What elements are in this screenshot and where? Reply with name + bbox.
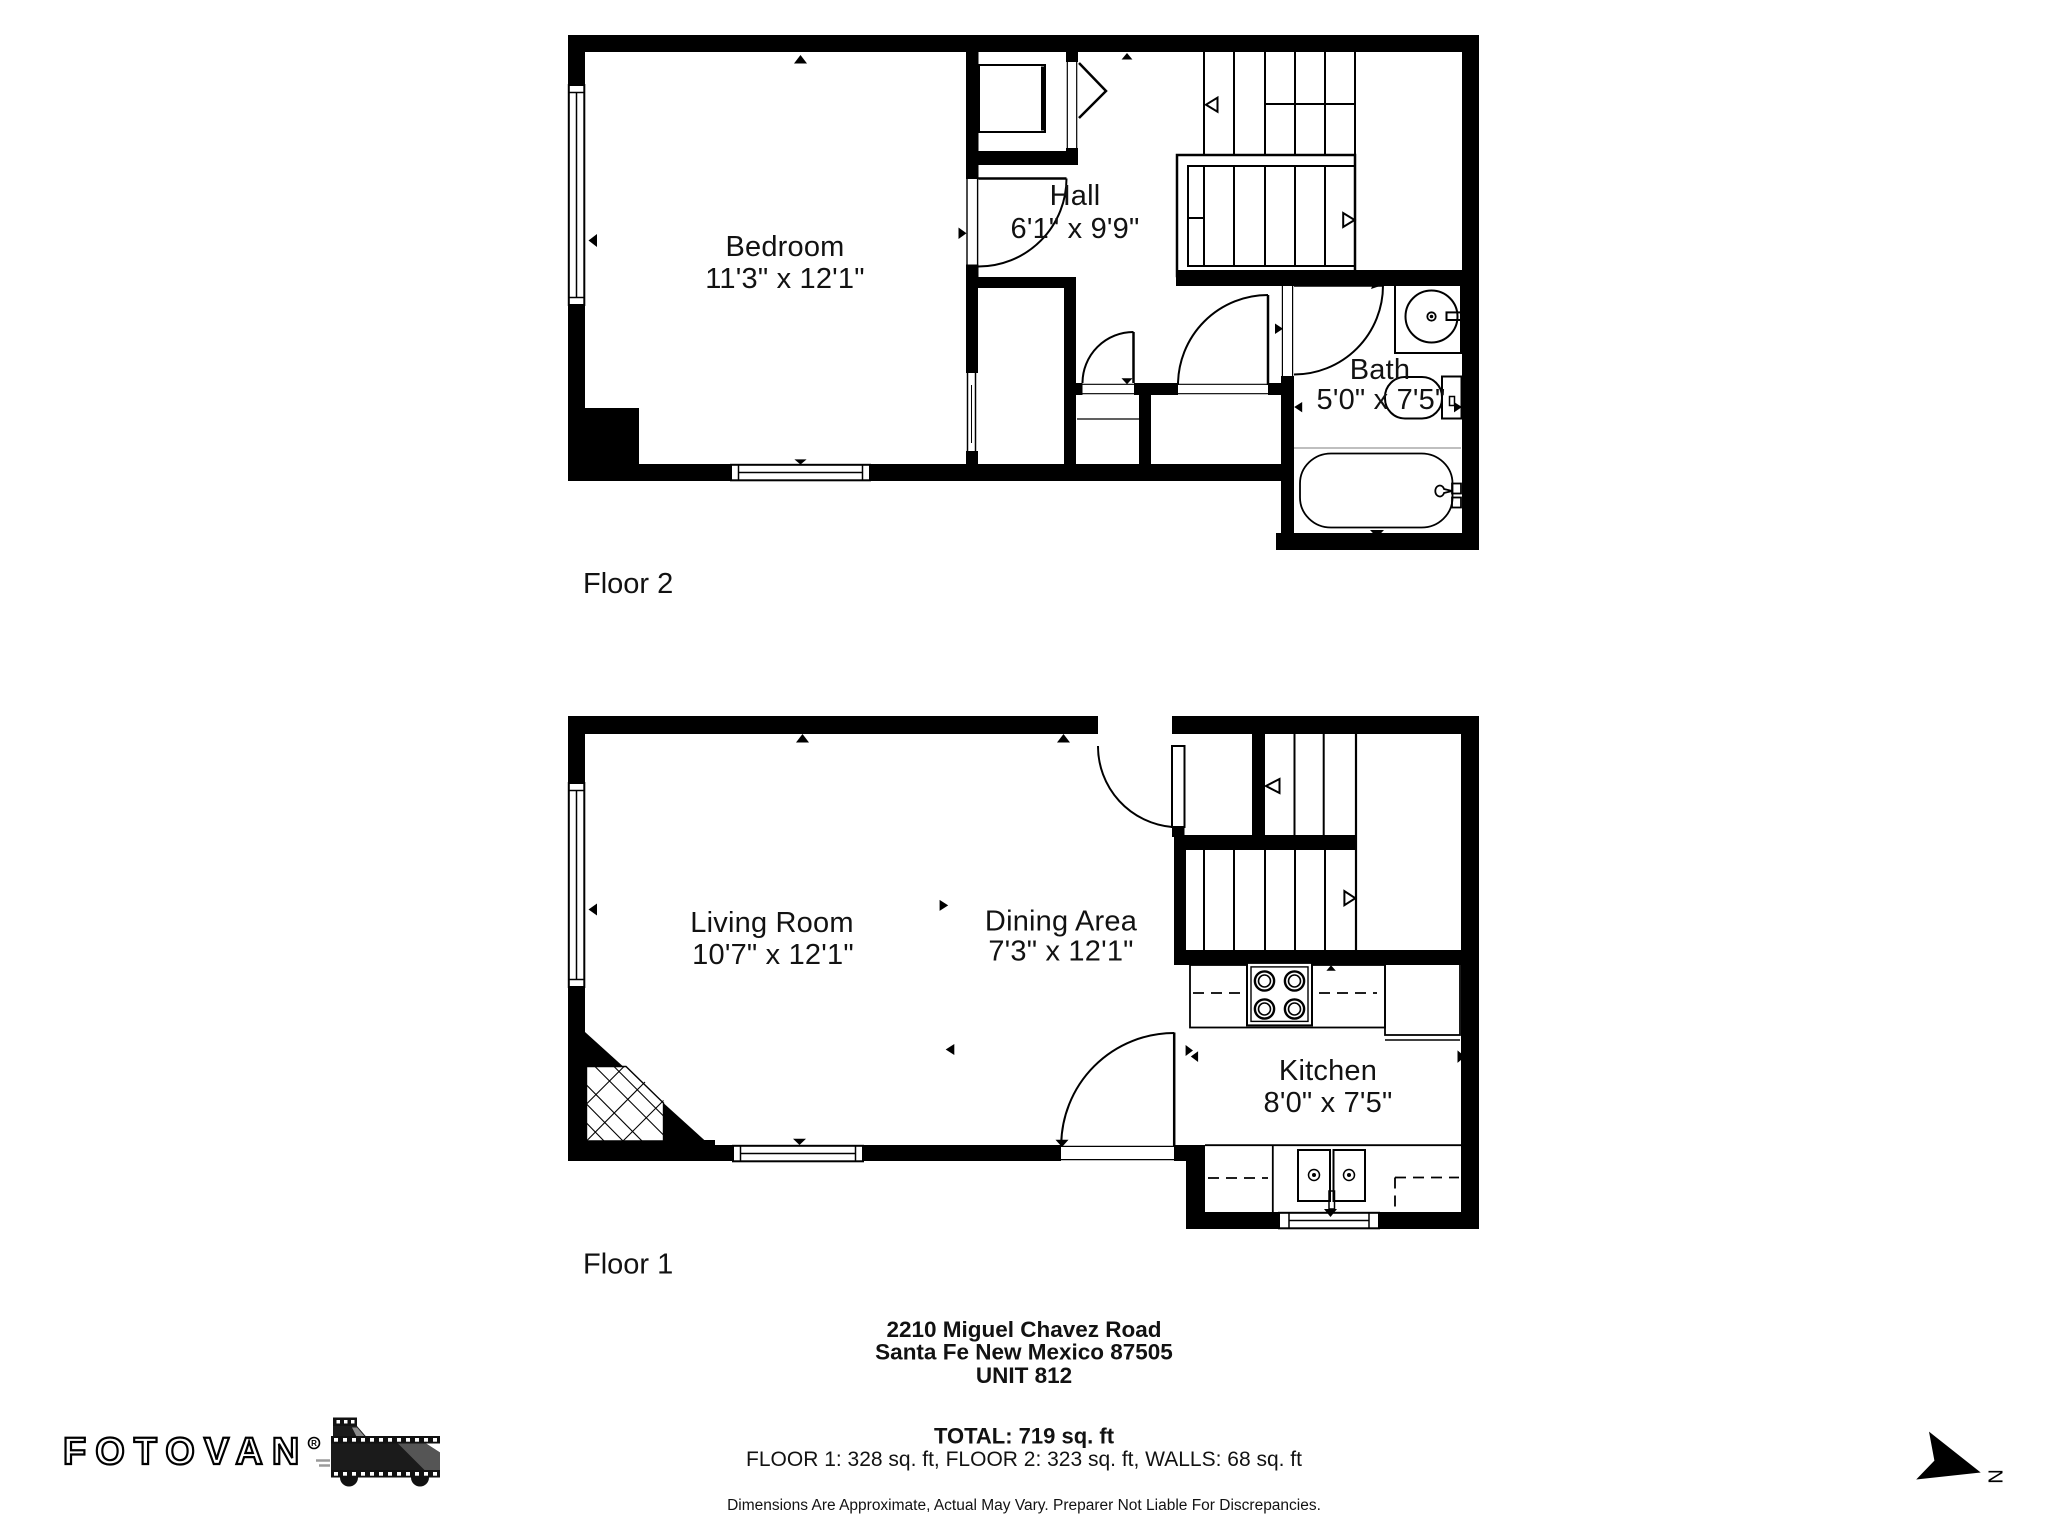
svg-text:R: R	[311, 1439, 317, 1448]
svg-text:10'7" x 12'1": 10'7" x 12'1"	[692, 939, 854, 971]
svg-text:Living Room: Living Room	[690, 907, 853, 939]
svg-text:N: N	[1984, 1469, 2006, 1483]
svg-text:Santa Fe New Mexico 87505: Santa Fe New Mexico 87505	[875, 1340, 1173, 1365]
svg-text:UNIT 812: UNIT 812	[976, 1363, 1072, 1388]
svg-text:FOTOVAN: FOTOVAN	[63, 1431, 308, 1473]
svg-text:Dimensions Are Approximate, Ac: Dimensions Are Approximate, Actual May V…	[727, 1497, 1321, 1514]
svg-text:Floor 2: Floor 2	[583, 568, 673, 600]
svg-text:Bath: Bath	[1350, 354, 1410, 386]
svg-text:11'3" x 12'1": 11'3" x 12'1"	[705, 263, 865, 295]
svg-text:TOTAL: 719 sq. ft: TOTAL: 719 sq. ft	[934, 1424, 1115, 1449]
svg-text:7'3" x 12'1": 7'3" x 12'1"	[988, 936, 1133, 968]
svg-text:Floor 1: Floor 1	[583, 1248, 673, 1280]
svg-text:8'0" x 7'5": 8'0" x 7'5"	[1264, 1087, 1393, 1119]
svg-text:5'0" x 7'5": 5'0" x 7'5"	[1317, 384, 1446, 416]
svg-text:6'1" x 9'9": 6'1" x 9'9"	[1011, 213, 1140, 245]
svg-text:2210 Miguel Chavez Road: 2210 Miguel Chavez Road	[886, 1317, 1161, 1342]
svg-text:Hall: Hall	[1050, 180, 1101, 212]
svg-text:Bedroom: Bedroom	[725, 231, 844, 263]
svg-text:Dining Area: Dining Area	[985, 905, 1138, 937]
svg-text:Kitchen: Kitchen	[1279, 1055, 1377, 1087]
svg-text:FLOOR 1: 328 sq. ft, FLOOR 2:: FLOOR 1: 328 sq. ft, FLOOR 2: 323 sq. ft…	[746, 1448, 1302, 1471]
